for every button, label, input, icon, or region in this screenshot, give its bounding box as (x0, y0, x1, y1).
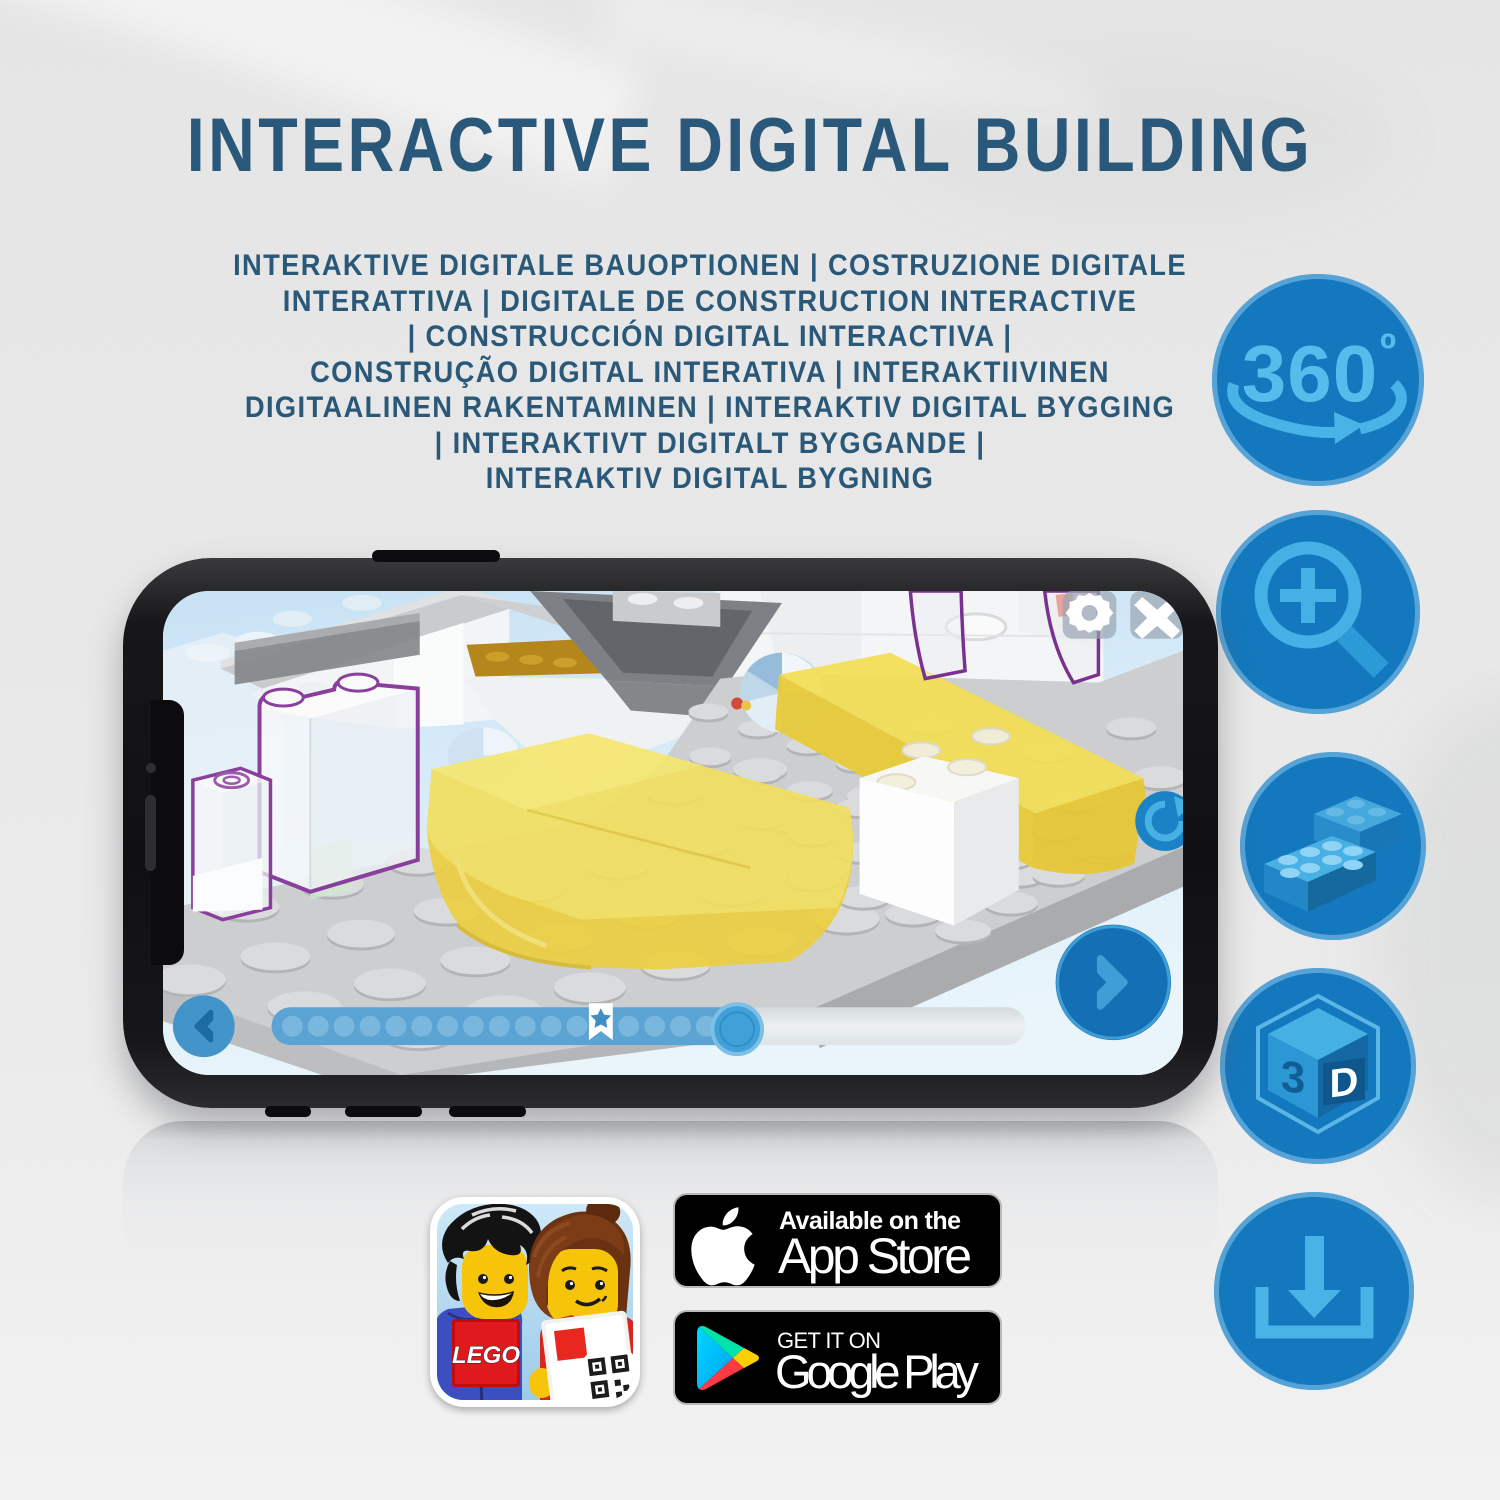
svg-text:LEGO: LEGO (452, 1342, 520, 1369)
svg-text:D: D (1330, 1058, 1359, 1107)
svg-text:360: 360 (1242, 329, 1378, 418)
svg-text:Google Play: Google Play (775, 1345, 980, 1398)
svg-text:º: º (1380, 325, 1396, 374)
svg-text:3: 3 (1281, 1052, 1305, 1104)
svg-text:App Store: App Store (778, 1228, 972, 1284)
